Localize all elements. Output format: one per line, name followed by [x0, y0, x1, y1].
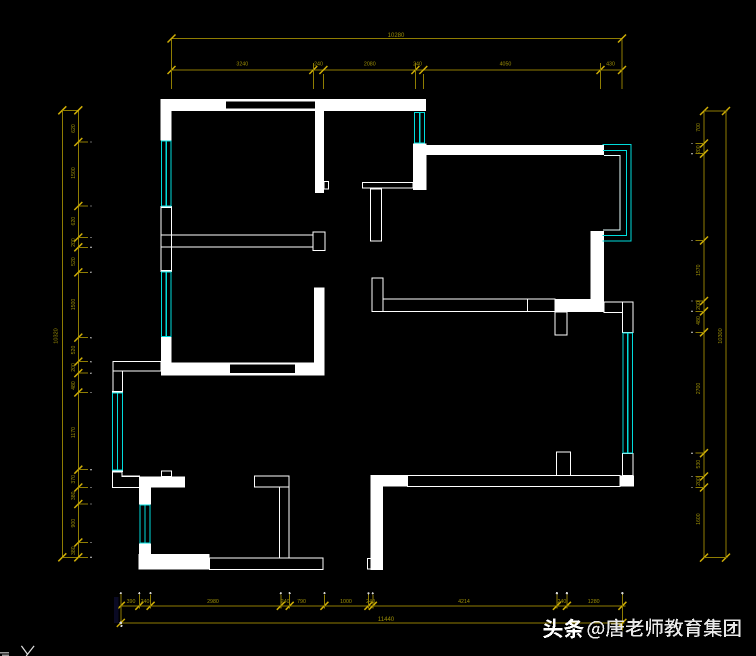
svg-text:3240: 3240 — [236, 62, 248, 68]
svg-text:620: 620 — [71, 124, 77, 133]
svg-text:200: 200 — [696, 145, 702, 154]
svg-text:240: 240 — [413, 62, 422, 68]
svg-text:200: 200 — [71, 238, 77, 247]
svg-text:4214: 4214 — [458, 599, 470, 605]
svg-text:240: 240 — [314, 62, 323, 68]
svg-text:700: 700 — [696, 123, 702, 132]
svg-text:1500: 1500 — [71, 167, 77, 179]
svg-text:480: 480 — [696, 316, 702, 325]
svg-text:430: 430 — [606, 62, 615, 68]
svg-text:390: 390 — [127, 599, 136, 605]
svg-text:2080: 2080 — [364, 62, 376, 68]
svg-text:1500: 1500 — [71, 299, 77, 311]
svg-text:4050: 4050 — [500, 62, 512, 68]
svg-text:380: 380 — [71, 546, 77, 555]
svg-text:240: 240 — [281, 599, 290, 605]
svg-text:900: 900 — [71, 519, 77, 528]
svg-text:480: 480 — [71, 381, 77, 390]
svg-text:380: 380 — [71, 491, 77, 500]
svg-text:370: 370 — [71, 475, 77, 484]
svg-text:1170: 1170 — [71, 427, 77, 438]
svg-text:200: 200 — [696, 301, 702, 310]
svg-text:10320: 10320 — [54, 328, 60, 344]
svg-text:2700: 2700 — [696, 383, 702, 395]
svg-text:200: 200 — [71, 363, 77, 372]
svg-text:200: 200 — [696, 477, 702, 486]
svg-text:10280: 10280 — [388, 33, 405, 39]
svg-text:240: 240 — [141, 599, 150, 605]
svg-text:11440: 11440 — [378, 617, 395, 623]
svg-text:520: 520 — [71, 257, 77, 266]
svg-text:240: 240 — [366, 599, 375, 605]
svg-text:1280: 1280 — [588, 599, 600, 605]
svg-text:620: 620 — [71, 217, 77, 226]
svg-text:1600: 1600 — [696, 513, 702, 525]
svg-text:1000: 1000 — [340, 599, 352, 605]
svg-text:520: 520 — [71, 346, 77, 355]
svg-text:530: 530 — [696, 460, 702, 469]
svg-text:240: 240 — [557, 599, 566, 605]
svg-text:790: 790 — [297, 599, 306, 605]
svg-text:1570: 1570 — [696, 264, 702, 276]
svg-text:10300: 10300 — [718, 328, 724, 344]
svg-text:2980: 2980 — [207, 599, 219, 605]
